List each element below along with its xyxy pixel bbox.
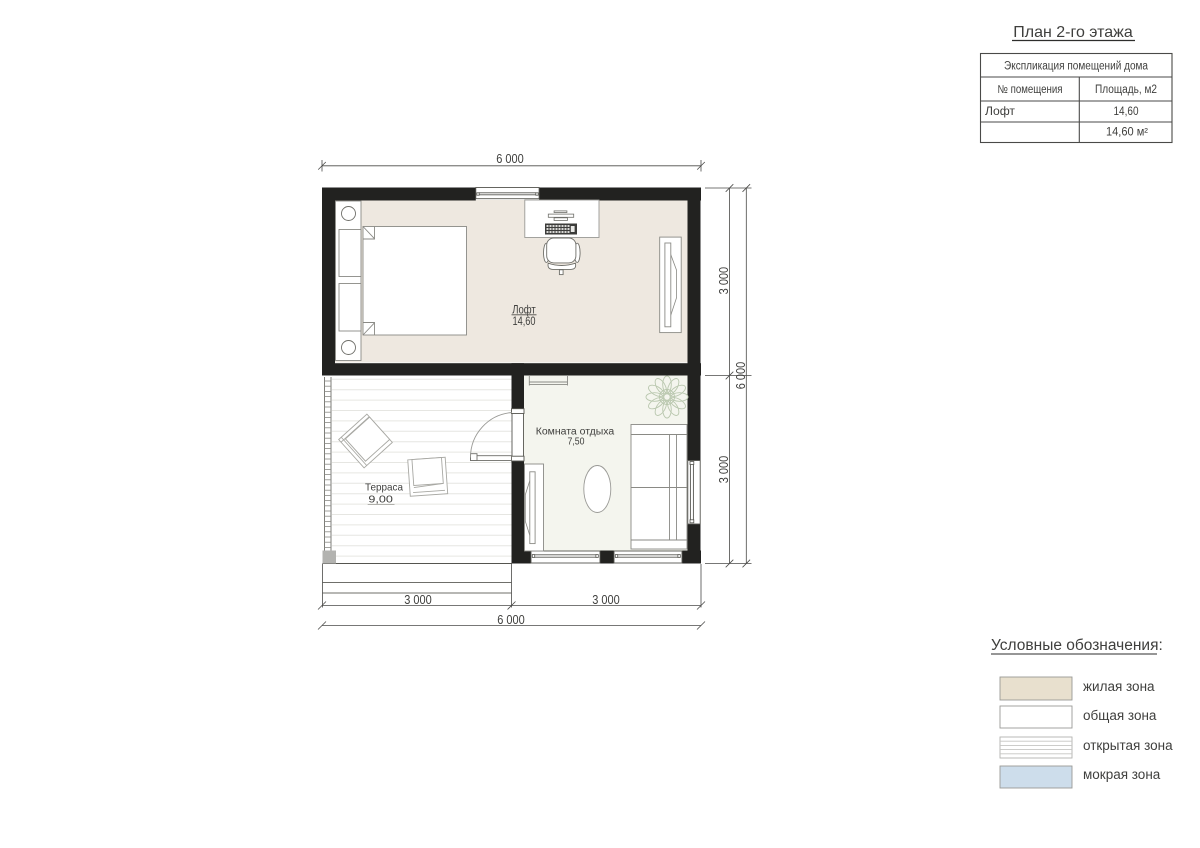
svg-text:3 000: 3 000 bbox=[404, 593, 432, 607]
svg-text:3 000: 3 000 bbox=[717, 267, 731, 295]
svg-text:общая зона: общая зона bbox=[1083, 708, 1157, 723]
svg-text:открытая зона: открытая зона bbox=[1083, 738, 1173, 753]
svg-text:3 000: 3 000 bbox=[717, 456, 731, 484]
svg-text:Терраса: Терраса bbox=[365, 482, 403, 494]
svg-text:Экспликация помещений дома: Экспликация помещений дома bbox=[1004, 60, 1149, 72]
svg-text:План 2-го этажа: План 2-го этажа bbox=[1013, 24, 1133, 41]
svg-text:7,50: 7,50 bbox=[568, 437, 585, 448]
svg-text:Лофт: Лофт bbox=[985, 106, 1016, 118]
svg-text:3 000: 3 000 bbox=[592, 593, 620, 607]
svg-text:мокрая зона: мокрая зона bbox=[1083, 767, 1161, 782]
svg-text:14,60: 14,60 bbox=[513, 314, 536, 328]
svg-text:14,60: 14,60 bbox=[1114, 106, 1139, 118]
svg-text:6 000: 6 000 bbox=[734, 362, 748, 390]
svg-text:Площадь, м2: Площадь, м2 bbox=[1095, 84, 1157, 96]
svg-text:6 000: 6 000 bbox=[497, 613, 525, 627]
svg-text:№ помещения: № помещения bbox=[998, 84, 1063, 96]
svg-text:14,60 м²: 14,60 м² bbox=[1106, 127, 1148, 139]
svg-text:жилая зона: жилая зона bbox=[1083, 679, 1155, 694]
svg-text:9,00: 9,00 bbox=[368, 494, 393, 506]
svg-text:Условные обозначения:: Условные обозначения: bbox=[991, 637, 1163, 654]
svg-text:6 000: 6 000 bbox=[496, 152, 524, 166]
